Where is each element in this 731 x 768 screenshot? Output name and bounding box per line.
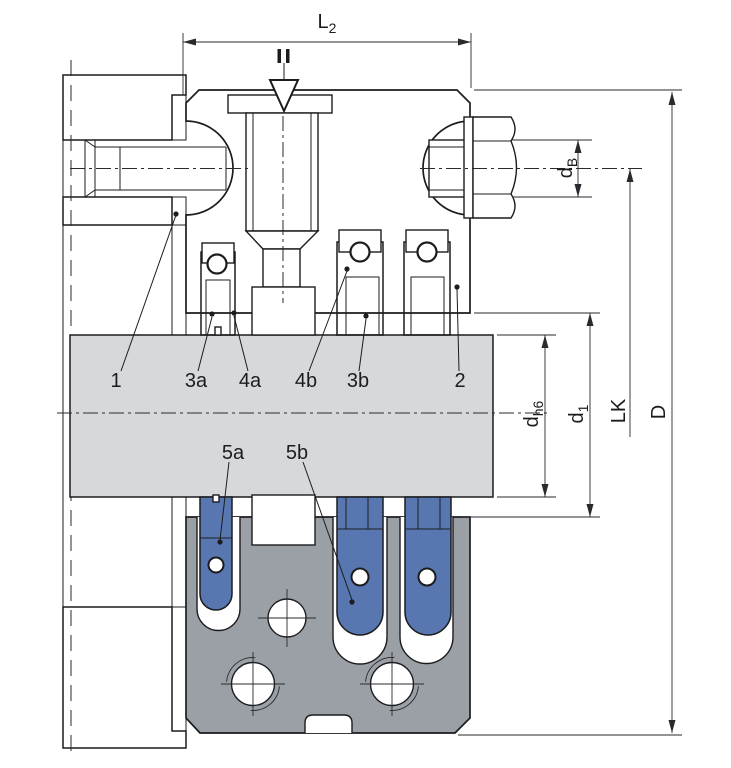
port-block-bottom (252, 495, 315, 545)
callout-5a: 5a (222, 442, 245, 464)
arrowhead (458, 39, 471, 46)
dim-label-d1: d1 (566, 404, 591, 423)
hex-head (473, 117, 517, 218)
arrowhead (575, 140, 582, 153)
dim-label-dh6: dh6 (521, 400, 546, 427)
callout-4b: 4b (295, 370, 317, 392)
arrowhead (669, 92, 676, 105)
packing-lip (346, 277, 379, 335)
callout-4a: 4a (239, 370, 262, 392)
dim-label-d: D (648, 405, 670, 419)
garter-spring (208, 255, 227, 274)
stuffing-box-sectional-drawing: L2 dB dh6 d1 LK D (0, 0, 731, 768)
arrowhead (542, 335, 549, 348)
gasket-strip-top (172, 95, 186, 140)
garter-spring (351, 243, 370, 262)
spring-element-5a (200, 495, 232, 610)
callout-5b: 5b (286, 442, 308, 464)
arrowhead (542, 484, 549, 497)
clamp-bolt-right (420, 117, 642, 218)
housing-lower-block (63, 607, 186, 748)
arrowhead (575, 184, 582, 197)
spring-element-5b (337, 497, 383, 635)
leader-dot (454, 284, 459, 289)
housing-upper-block (63, 75, 186, 140)
shaft (57, 335, 548, 497)
spring-finger (405, 497, 451, 635)
arrowhead (587, 504, 594, 517)
packing-ring-4b-3b (337, 230, 383, 335)
dim-lk: LK (608, 169, 634, 437)
housing-mid-strip (63, 197, 172, 225)
bottom-notch (305, 715, 352, 733)
gland-flange-top (186, 90, 470, 335)
dim-label-lk: LK (608, 398, 630, 423)
callout-3b: 3b (347, 370, 369, 392)
dim-l2: L2 (183, 11, 471, 95)
dim-label-l2: L2 (318, 11, 337, 36)
callout-2: 2 (454, 370, 465, 392)
dim-dh6: dh6 (497, 335, 556, 497)
arrowhead (587, 313, 594, 326)
port-taper (246, 231, 318, 249)
arrowhead (627, 169, 634, 182)
finger-notch (213, 495, 219, 502)
gasket-strip-bottom (172, 607, 186, 731)
arrowhead (183, 39, 196, 46)
lantern-space (252, 287, 315, 335)
arrowhead (669, 720, 676, 733)
dim-label-db: dB (555, 158, 580, 178)
bolt-washer-face (464, 117, 473, 218)
spring-element-right (405, 497, 451, 635)
leader-dot (231, 310, 236, 315)
vent-bar (286, 49, 290, 63)
clamp-bolt-left (70, 140, 248, 197)
finger-hole (419, 569, 436, 586)
callout-1: 1 (110, 370, 121, 392)
leader-dot (344, 266, 349, 271)
leader-dot (209, 311, 214, 316)
leader-dot (363, 313, 368, 318)
leader-dot (173, 211, 178, 216)
plug-body (246, 113, 318, 231)
bolt-chamfer (85, 190, 95, 197)
port-channel (263, 249, 300, 287)
callout-3a: 3a (185, 370, 208, 392)
packing-end-ring (404, 230, 450, 335)
shaft-body (70, 335, 493, 497)
spring-finger (200, 497, 232, 610)
finger-hole (352, 569, 369, 586)
garter-spring (418, 243, 437, 262)
spring-finger (337, 497, 383, 635)
vent-bar (278, 49, 282, 63)
leader-dot (349, 599, 354, 604)
packing-lip (411, 277, 444, 335)
packing-ring-3a-4a (201, 243, 235, 335)
packing-notch (215, 327, 221, 335)
finger-hole (209, 558, 224, 573)
leader-dot (217, 539, 222, 544)
bolt-chamfer (85, 140, 95, 147)
